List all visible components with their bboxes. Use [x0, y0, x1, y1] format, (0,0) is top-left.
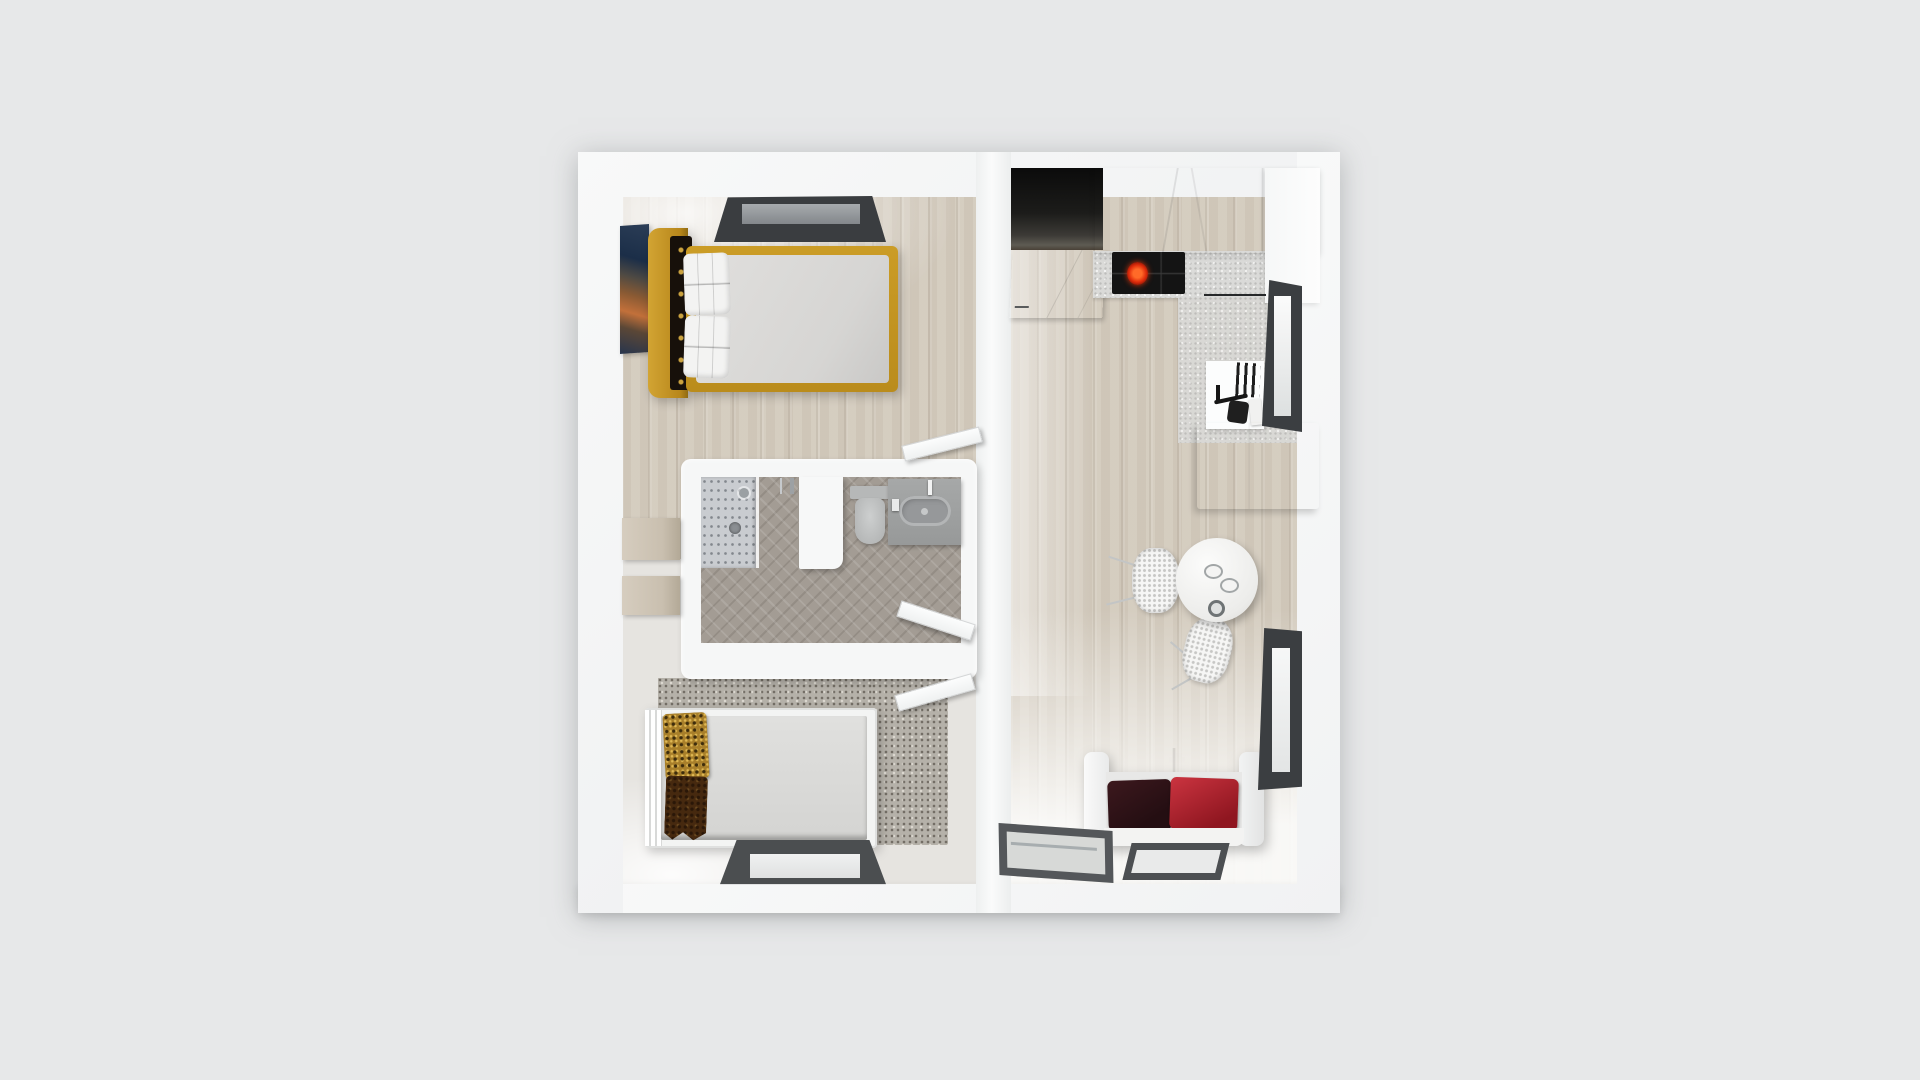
- cushion-red: [1169, 777, 1239, 831]
- panel-handle-icon: [1011, 842, 1097, 851]
- wall-central-divider: [976, 152, 1011, 913]
- dish-towel-icon: [1249, 398, 1264, 425]
- counter-edge-line: [1204, 294, 1266, 296]
- toilet: [850, 486, 890, 546]
- window-glass: [750, 854, 860, 878]
- cooktop: [1112, 252, 1185, 294]
- sink-drain-icon: [921, 508, 928, 515]
- kitchen-sink-unit: [1206, 361, 1264, 429]
- shower-head-icon: [739, 488, 749, 498]
- faucet-icon: [928, 480, 932, 495]
- glass-icon: [1208, 600, 1225, 617]
- wardrobe-bedroom-second: [622, 576, 680, 615]
- window-bedroom-second: [720, 840, 886, 886]
- wardrobe-bedroom-main: [622, 518, 680, 560]
- dish-rack-icon: [1235, 362, 1261, 397]
- wicker-chair: [1132, 548, 1179, 613]
- window-bedroom-main: [714, 196, 886, 242]
- cushion-maroon: [1107, 779, 1173, 831]
- sink-vanity: [888, 479, 961, 545]
- glass-floor-panel: [999, 823, 1114, 883]
- wall-bottom: [578, 884, 1340, 913]
- soap-dispenser-icon: [892, 499, 899, 511]
- single-bed: [645, 708, 877, 848]
- pot-icon: [1227, 400, 1250, 425]
- window-glass: [1272, 648, 1290, 772]
- shower-drain-icon: [729, 522, 741, 534]
- double-bed: [648, 228, 898, 398]
- toilet-bowl: [855, 498, 885, 544]
- pillow: [683, 315, 731, 379]
- shower-controls: [776, 478, 806, 494]
- shower-glass-panel: [756, 477, 759, 568]
- bed-headboard-slats: [645, 710, 662, 846]
- plate-icon: [1204, 564, 1223, 579]
- cabinet-handle-icon: [1015, 306, 1029, 308]
- glass-floor-panel: [1122, 843, 1229, 880]
- wall-art: [620, 224, 649, 354]
- floorplan-stage: [0, 0, 1920, 1080]
- window-glass: [1274, 296, 1291, 416]
- plate-icon: [1220, 578, 1239, 593]
- island-cabinet: [1197, 423, 1319, 509]
- pillow-brown-pattern: [664, 775, 708, 840]
- wall-left: [578, 152, 623, 913]
- burner-glow-icon: [1127, 262, 1148, 285]
- dining-table: [1176, 538, 1258, 622]
- pillow: [683, 252, 731, 316]
- entry-alcove: [1011, 168, 1103, 250]
- hall-cabinet: [1009, 250, 1106, 318]
- window-glass: [742, 204, 860, 224]
- window-living-right: [1258, 628, 1302, 790]
- pillow-gold-pattern: [662, 712, 709, 780]
